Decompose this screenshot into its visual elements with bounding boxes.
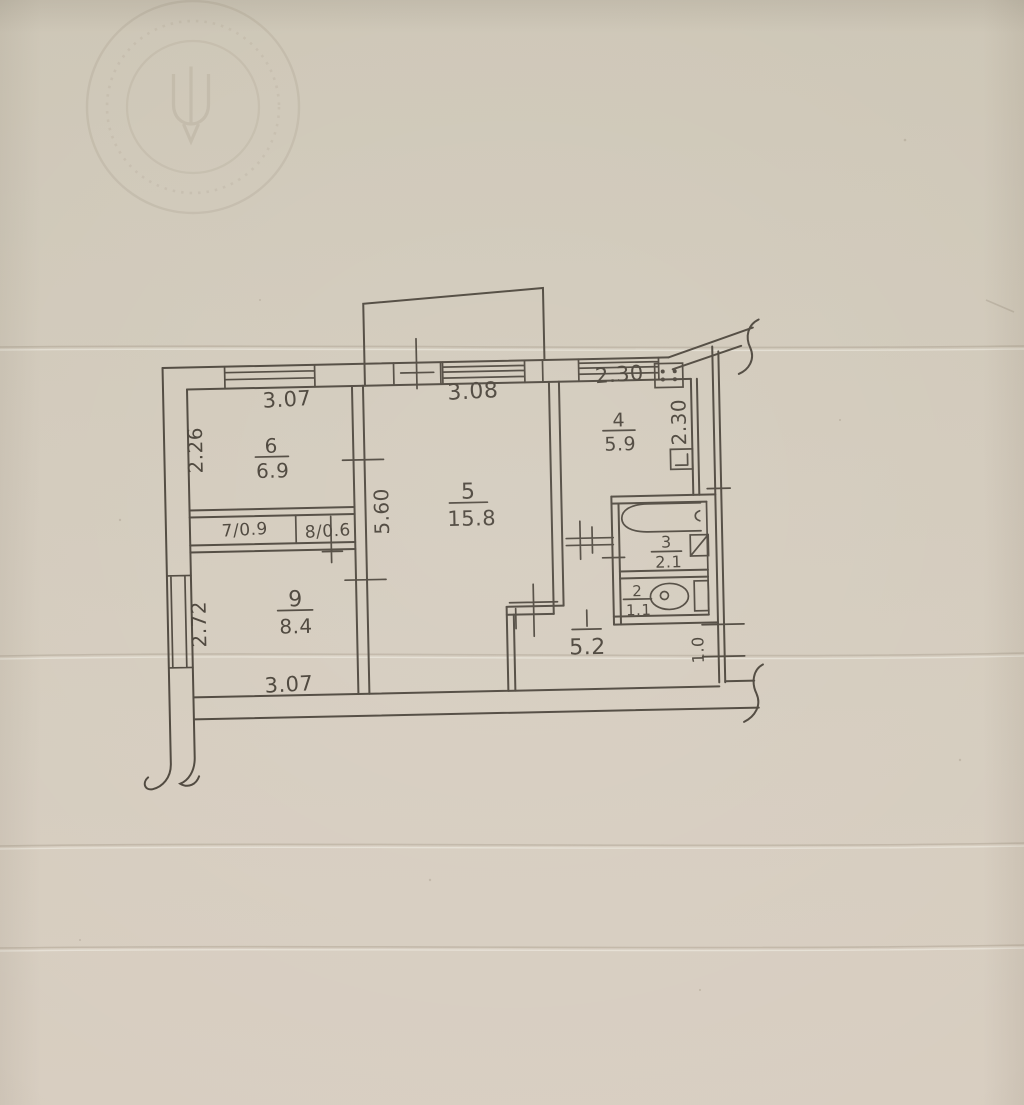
angled-wall-outer	[668, 328, 754, 358]
wash-basin-icon	[690, 535, 708, 556]
window-room6	[225, 365, 315, 389]
room6-area: 6.9	[256, 458, 290, 483]
tick-hall-door	[509, 584, 558, 637]
room4-area: 5.9	[604, 433, 636, 456]
windows-top-wall	[224, 334, 659, 393]
dim-top-left: 3.07	[262, 386, 312, 413]
kitchen-sink-icon	[670, 449, 692, 469]
bar-hall	[572, 629, 601, 630]
closet7-label: 7/0.9	[221, 519, 268, 542]
wall-room6-south	[190, 507, 355, 517]
stamp-outer-circle	[87, 1, 299, 213]
room9-number: 9	[288, 587, 303, 612]
room5-area: 15.8	[447, 506, 496, 531]
tick-wall95	[345, 579, 386, 580]
dim-left-upper: 2.26	[183, 427, 208, 474]
toilet-icon	[650, 581, 709, 612]
bottom-wall-right-stub	[725, 681, 754, 682]
dim-center-vertical: 5.60	[369, 488, 394, 535]
floor-plan-scan: 3.07 3.08 2.30 2.26 5.60 2.30 2.72 3.07 …	[0, 0, 1024, 1105]
dim-entry-width: 1.0	[688, 636, 708, 663]
room2-area: 1.1	[626, 601, 652, 620]
wall-bath-west	[611, 496, 621, 624]
room4-number: 4	[612, 409, 625, 431]
corner-crease	[986, 300, 1014, 312]
dim-top-right: 2.30	[594, 361, 644, 389]
closet-divider	[296, 515, 297, 543]
hall-area: 5.2	[569, 635, 606, 661]
bottom-wall-outer-line	[194, 708, 759, 720]
room3-area: 2.1	[655, 552, 682, 572]
dim-top-center: 3.08	[447, 378, 499, 406]
fixtures	[619, 363, 710, 613]
left-wall-outer-line	[136, 368, 171, 790]
stamp-inner-circle	[127, 41, 259, 173]
wall-room5-east	[549, 382, 564, 614]
dim-left-lower: 2.72	[186, 601, 211, 648]
tick-kitchen-door	[566, 521, 614, 560]
room6-number: 6	[264, 434, 278, 458]
paper-creases	[0, 139, 1024, 991]
dim-bottom: 3.07	[264, 671, 314, 698]
trident-icon	[174, 67, 209, 142]
wall-room5-west	[352, 386, 369, 694]
room3-number: 3	[661, 532, 672, 551]
tick-wall56-upper	[343, 459, 384, 460]
dim-kitchen-vertical: 2.30	[666, 399, 691, 446]
room-labels: 6 6.9 5 15.8 4 5.9 9 8.4 3 2.1 2 1.1 5.2…	[219, 408, 684, 668]
closet8-label: 8/0.6	[304, 520, 351, 543]
bathtub-icon	[622, 503, 702, 533]
room5-number: 5	[461, 479, 476, 504]
wall-break-curl-bottom-right	[743, 664, 764, 721]
room2-number: 2	[632, 582, 642, 600]
wall-hall-west	[507, 607, 516, 691]
right-wall	[712, 346, 725, 682]
wall-kitchen-east	[691, 379, 699, 495]
paper-specks	[79, 139, 961, 991]
stamp-ring-text	[107, 21, 279, 193]
official-stamp	[87, 1, 299, 213]
room9-area: 8.4	[279, 614, 313, 639]
